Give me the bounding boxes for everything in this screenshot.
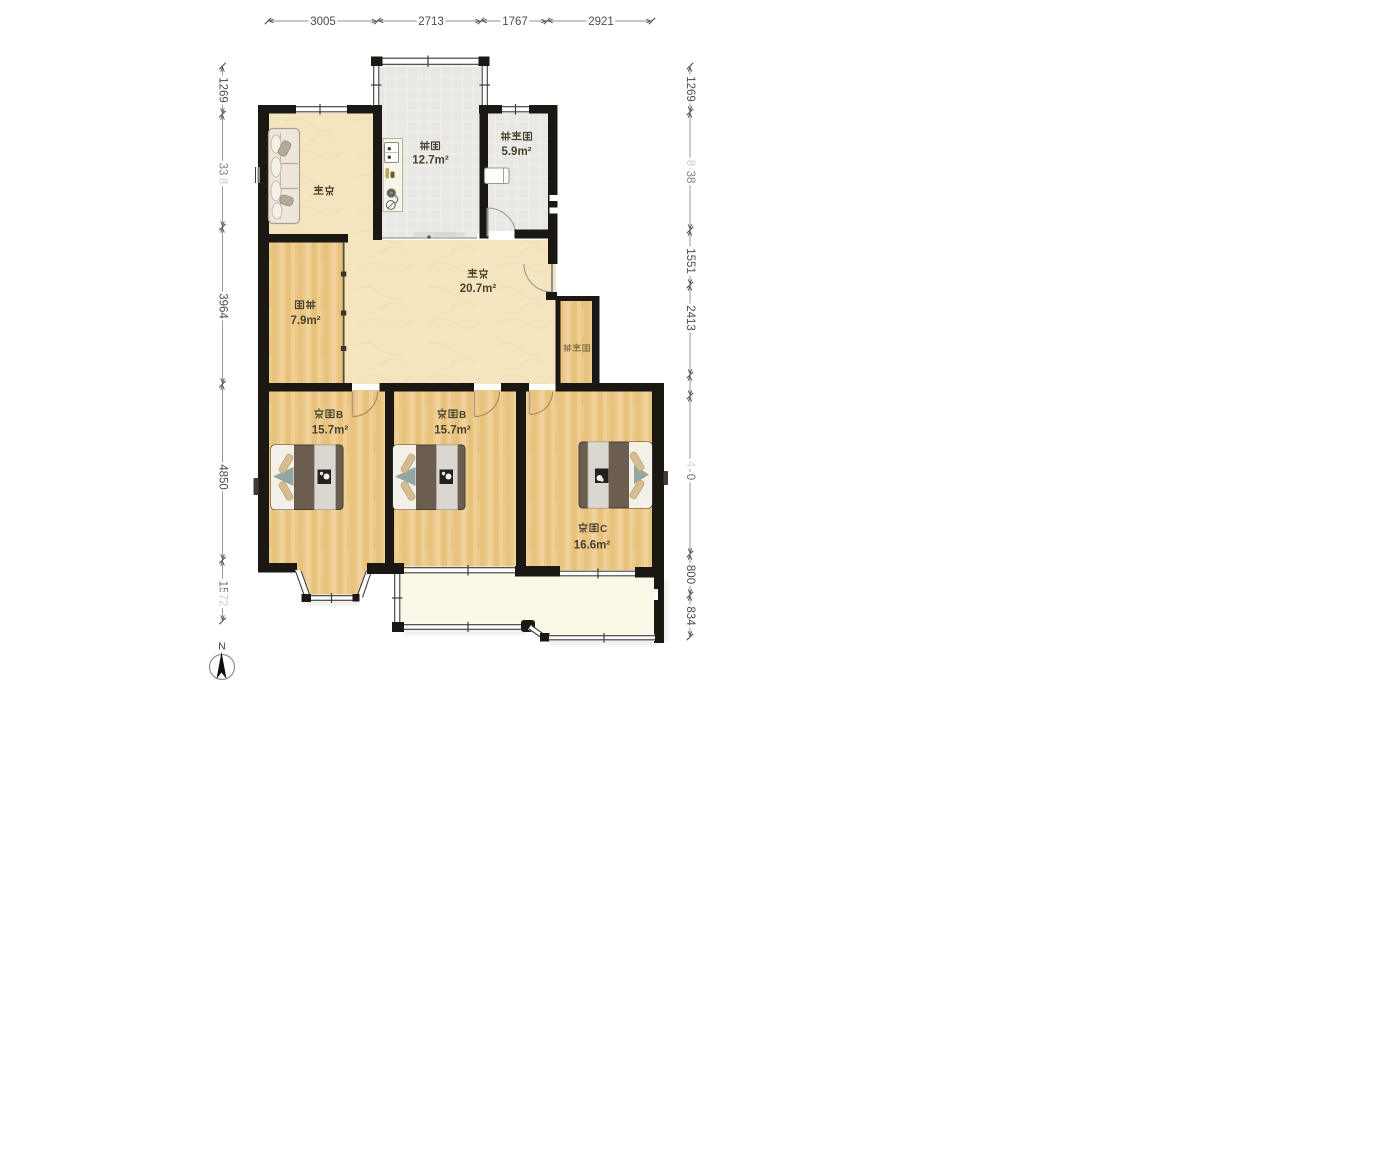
svg-text:8: 8 xyxy=(217,178,229,184)
svg-text:C: C xyxy=(600,524,607,535)
svg-text:20.7m²: 20.7m² xyxy=(460,283,497,295)
svg-text:38: 38 xyxy=(684,171,696,184)
svg-text:0: 0 xyxy=(684,474,696,480)
svg-text:2921: 2921 xyxy=(588,16,614,28)
svg-text:15: 15 xyxy=(217,581,229,594)
svg-text:1767: 1767 xyxy=(502,16,528,28)
svg-text:72: 72 xyxy=(217,594,229,607)
svg-text:7.9m²: 7.9m² xyxy=(290,315,320,327)
svg-text:834: 834 xyxy=(684,606,696,626)
svg-text:2413: 2413 xyxy=(684,305,696,331)
svg-text:15.7m²: 15.7m² xyxy=(312,425,349,437)
svg-text:15.7m²: 15.7m² xyxy=(434,425,471,437)
svg-text:1269: 1269 xyxy=(684,76,696,102)
svg-text:N: N xyxy=(218,642,225,653)
svg-text:5.9m²: 5.9m² xyxy=(501,146,531,158)
svg-text:8: 8 xyxy=(684,160,696,166)
svg-text:B: B xyxy=(459,410,466,421)
svg-text:3005: 3005 xyxy=(310,16,336,28)
svg-text:3964: 3964 xyxy=(217,293,229,319)
svg-text:12.7m²: 12.7m² xyxy=(412,155,449,167)
svg-text:16.6m²: 16.6m² xyxy=(574,540,611,552)
svg-text:4850: 4850 xyxy=(217,464,229,490)
svg-text:800: 800 xyxy=(684,565,696,584)
svg-text:4: 4 xyxy=(684,461,696,468)
svg-text:2713: 2713 xyxy=(418,16,444,28)
svg-text:33: 33 xyxy=(217,163,229,176)
svg-text:1269: 1269 xyxy=(217,77,229,103)
svg-text:B: B xyxy=(336,410,343,421)
svg-text:1551: 1551 xyxy=(684,248,696,274)
